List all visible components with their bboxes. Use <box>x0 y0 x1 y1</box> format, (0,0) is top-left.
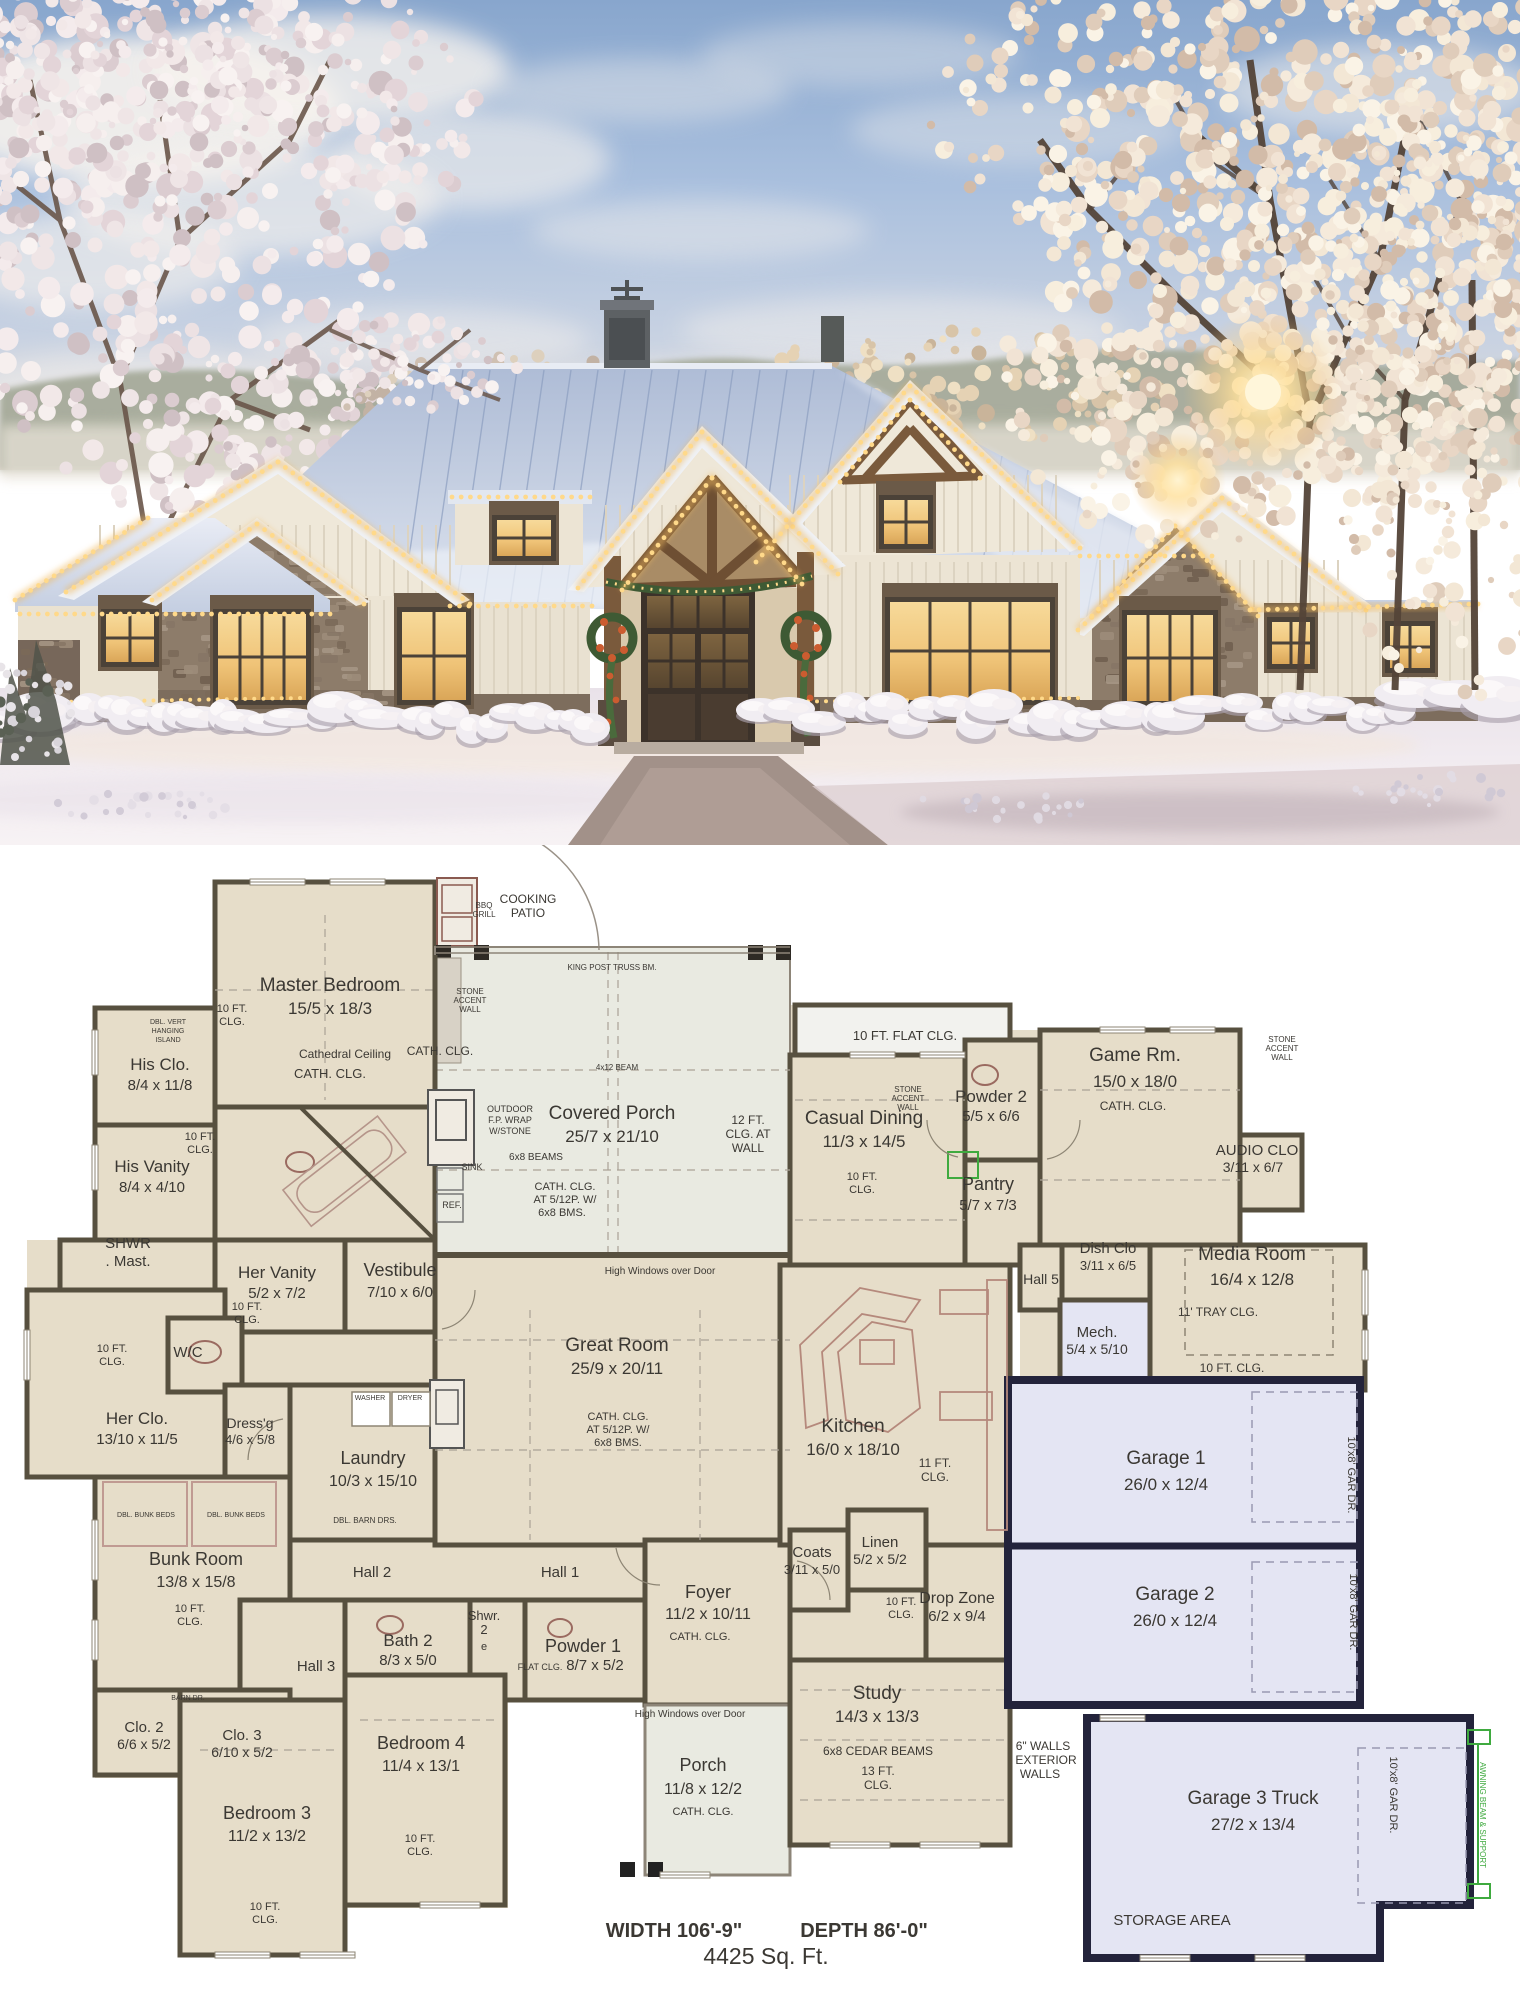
svg-text:10 FT.: 10 FT. <box>232 1301 263 1313</box>
svg-text:ACCENT: ACCENT <box>454 996 487 1005</box>
svg-text:27/2 x 13/4: 27/2 x 13/4 <box>1211 1815 1295 1834</box>
svg-text:BARN DR.: BARN DR. <box>171 1695 205 1702</box>
svg-text:Mech.: Mech. <box>1077 1324 1118 1341</box>
svg-text:CATH. CLG.: CATH. CLG. <box>535 1181 596 1193</box>
svg-text:Bedroom 4: Bedroom 4 <box>377 1733 465 1753</box>
svg-text:11 FT.: 11 FT. <box>919 1456 951 1470</box>
svg-text:5/7 x 7/3: 5/7 x 7/3 <box>959 1197 1017 1214</box>
svg-text:10 FT.: 10 FT. <box>97 1343 128 1355</box>
svg-text:CLG.: CLG. <box>888 1609 914 1621</box>
svg-text:Hall 2: Hall 2 <box>353 1564 391 1581</box>
svg-text:4425 Sq. Ft.: 4425 Sq. Ft. <box>703 1943 828 1969</box>
svg-text:6/10 x 5/2: 6/10 x 5/2 <box>211 1744 273 1760</box>
svg-text:11/3 x 14/5: 11/3 x 14/5 <box>823 1132 906 1151</box>
svg-text:PATIO: PATIO <box>511 906 545 920</box>
svg-text:10'x8' GAR DR.: 10'x8' GAR DR. <box>1345 1437 1357 1514</box>
svg-text:10 FT.: 10 FT. <box>847 1171 878 1183</box>
svg-text:CATH. CLG.: CATH. CLG. <box>588 1411 649 1423</box>
svg-text:11/2 x 10/11: 11/2 x 10/11 <box>665 1606 751 1623</box>
svg-text:6" WALLS: 6" WALLS <box>1016 1739 1071 1753</box>
svg-text:FLAT CLG.: FLAT CLG. <box>518 1662 563 1672</box>
svg-text:AT 5/12P. W/: AT 5/12P. W/ <box>534 1194 598 1206</box>
svg-text:CLG.: CLG. <box>234 1314 260 1326</box>
svg-text:5/2 x 5/2: 5/2 x 5/2 <box>853 1551 907 1567</box>
svg-text:Garage 1: Garage 1 <box>1126 1448 1205 1469</box>
svg-text:12 FT.: 12 FT. <box>731 1113 764 1127</box>
svg-text:13/10 x 11/5: 13/10 x 11/5 <box>96 1431 177 1448</box>
svg-text:11' TRAY CLG.: 11' TRAY CLG. <box>1178 1305 1258 1319</box>
svg-text:Her Vanity: Her Vanity <box>238 1263 317 1282</box>
svg-text:CATH. CLG.: CATH. CLG. <box>673 1806 734 1818</box>
svg-text:SINK: SINK <box>461 1162 482 1172</box>
svg-text:DEPTH 86'-0": DEPTH 86'-0" <box>800 1920 928 1942</box>
svg-text:W/STONE: W/STONE <box>489 1126 531 1136</box>
svg-text:10 FT. FLAT CLG.: 10 FT. FLAT CLG. <box>853 1028 957 1043</box>
svg-text:Great Room: Great Room <box>565 1335 668 1356</box>
svg-text:e: e <box>481 1641 487 1653</box>
svg-text:AUDIO CLO: AUDIO CLO <box>1216 1142 1299 1159</box>
svg-text:CLG. AT: CLG. AT <box>725 1127 771 1141</box>
svg-text:10 FT.: 10 FT. <box>886 1596 917 1608</box>
svg-text:Hall 5: Hall 5 <box>1023 1271 1059 1287</box>
svg-text:WIDTH 106'-9": WIDTH 106'-9" <box>606 1920 742 1942</box>
svg-text:Shwr.: Shwr. <box>468 1608 501 1623</box>
svg-text:His Clo.: His Clo. <box>130 1055 190 1074</box>
svg-text:Her Clo.: Her Clo. <box>106 1409 168 1428</box>
svg-text:6x8 BEAMS: 6x8 BEAMS <box>509 1152 563 1163</box>
svg-text:DBL. BARN DRS.: DBL. BARN DRS. <box>333 1516 397 1525</box>
svg-text:CLG.: CLG. <box>252 1914 278 1926</box>
svg-text:CLG.: CLG. <box>99 1356 125 1368</box>
svg-text:Master Bedroom: Master Bedroom <box>260 975 400 996</box>
svg-text:5/2 x 7/2: 5/2 x 7/2 <box>248 1285 306 1302</box>
svg-text:10 FT.: 10 FT. <box>217 1003 248 1015</box>
svg-text:Foyer: Foyer <box>685 1582 731 1602</box>
svg-text:His Vanity: His Vanity <box>114 1157 190 1176</box>
svg-text:13 FT.: 13 FT. <box>861 1764 894 1778</box>
svg-text:Vestibule: Vestibule <box>363 1260 436 1280</box>
svg-text:6x8 CEDAR BEAMS: 6x8 CEDAR BEAMS <box>823 1744 933 1758</box>
svg-text:High Windows over Door: High Windows over Door <box>605 1266 716 1277</box>
svg-text:STORAGE AREA: STORAGE AREA <box>1113 1912 1230 1929</box>
svg-text:DBL. VERT: DBL. VERT <box>150 1019 187 1026</box>
svg-text:10 FT. CLG.: 10 FT. CLG. <box>1200 1361 1265 1375</box>
svg-text:26/0 x 12/4: 26/0 x 12/4 <box>1133 1611 1217 1630</box>
svg-text:3/11 x 5/0: 3/11 x 5/0 <box>784 1562 840 1577</box>
svg-text:WALL: WALL <box>1271 1053 1293 1062</box>
svg-text:W/C: W/C <box>173 1344 202 1361</box>
svg-text:10 FT.: 10 FT. <box>250 1901 281 1913</box>
svg-text:CLG.: CLG. <box>864 1778 892 1792</box>
svg-text:Porch: Porch <box>679 1755 726 1775</box>
svg-text:Laundry: Laundry <box>340 1448 405 1468</box>
svg-text:2: 2 <box>480 1622 487 1637</box>
svg-text:8/4 x 4/10: 8/4 x 4/10 <box>119 1179 185 1196</box>
svg-text:10 FT.: 10 FT. <box>175 1603 206 1615</box>
svg-text:WALL: WALL <box>897 1103 919 1112</box>
svg-text:EXTERIOR: EXTERIOR <box>1015 1753 1077 1767</box>
svg-text:CLG.: CLG. <box>187 1144 213 1156</box>
svg-text:ACCENT: ACCENT <box>1266 1044 1299 1053</box>
svg-text:CATH. CLG.: CATH. CLG. <box>407 1044 473 1058</box>
svg-text:5/5 x 6/6: 5/5 x 6/6 <box>962 1108 1020 1125</box>
svg-text:High Windows over Door: High Windows over Door <box>635 1709 746 1720</box>
svg-text:10/3 x 15/10: 10/3 x 15/10 <box>329 1473 417 1490</box>
svg-text:3/11 x 6/7: 3/11 x 6/7 <box>1223 1159 1284 1175</box>
svg-text:Cathedral Ceiling: Cathedral Ceiling <box>299 1047 391 1061</box>
svg-text:Drop Zone: Drop Zone <box>919 1590 995 1607</box>
svg-text:ACCENT: ACCENT <box>892 1094 925 1103</box>
svg-text:16/0 x 18/10: 16/0 x 18/10 <box>806 1440 900 1459</box>
svg-text:4/6 x 5/8: 4/6 x 5/8 <box>225 1432 275 1447</box>
svg-text:Dress'g: Dress'g <box>226 1415 273 1431</box>
svg-text:CATH. CLG.: CATH. CLG. <box>1100 1099 1166 1113</box>
svg-text:WALL: WALL <box>459 1005 481 1014</box>
svg-text:Game Rm.: Game Rm. <box>1089 1045 1181 1066</box>
svg-text:Hall 1: Hall 1 <box>541 1564 579 1581</box>
svg-text:CLG.: CLG. <box>407 1846 433 1858</box>
svg-text:8/7 x 5/2: 8/7 x 5/2 <box>566 1657 624 1674</box>
svg-text:OUTDOOR: OUTDOOR <box>487 1104 533 1114</box>
svg-text:Bath 2: Bath 2 <box>383 1631 432 1650</box>
svg-text:CLG.: CLG. <box>921 1470 949 1484</box>
svg-text:CLG.: CLG. <box>177 1616 203 1628</box>
svg-text:4x12 BEAM: 4x12 BEAM <box>596 1063 639 1072</box>
svg-text:15/5 x 18/3: 15/5 x 18/3 <box>288 999 372 1018</box>
svg-text:10 FT.: 10 FT. <box>185 1131 216 1143</box>
svg-text:F.P. WRAP: F.P. WRAP <box>488 1115 532 1125</box>
svg-text:Dish Clo: Dish Clo <box>1080 1240 1137 1257</box>
svg-text:Media Room: Media Room <box>1198 1244 1306 1265</box>
svg-text:Study: Study <box>853 1683 902 1704</box>
svg-text:6x8 BMS.: 6x8 BMS. <box>594 1437 642 1449</box>
svg-text:6/6 x 5/2: 6/6 x 5/2 <box>117 1736 171 1752</box>
svg-text:Powder 2: Powder 2 <box>955 1087 1027 1106</box>
svg-text:11/2 x 13/2: 11/2 x 13/2 <box>228 1828 306 1845</box>
svg-text:WALLS: WALLS <box>1020 1767 1060 1781</box>
svg-text:STONE: STONE <box>894 1085 921 1094</box>
svg-text:Linen: Linen <box>862 1534 899 1551</box>
svg-text:CLG.: CLG. <box>219 1016 245 1028</box>
svg-text:Powder 1: Powder 1 <box>545 1636 621 1656</box>
svg-text:Bunk Room: Bunk Room <box>149 1549 243 1569</box>
svg-text:WASHER: WASHER <box>355 1395 385 1402</box>
svg-text:10 FT.: 10 FT. <box>405 1833 436 1845</box>
svg-text:COOKING: COOKING <box>500 892 557 906</box>
svg-text:GRILL: GRILL <box>472 910 496 919</box>
svg-text:6/2 x 9/4: 6/2 x 9/4 <box>928 1608 986 1625</box>
svg-text:STONE: STONE <box>456 987 483 996</box>
svg-text:REF.: REF. <box>442 1200 462 1210</box>
svg-text:WALL: WALL <box>732 1141 765 1155</box>
svg-text:10'x8' GAR DR.: 10'x8' GAR DR. <box>1347 1574 1359 1651</box>
svg-text:DBL. BUNK BEDS: DBL. BUNK BEDS <box>207 1512 265 1519</box>
svg-text:Kitchen: Kitchen <box>821 1416 884 1437</box>
svg-text:Coats: Coats <box>792 1544 831 1561</box>
svg-text:Clo. 3: Clo. 3 <box>222 1727 261 1744</box>
svg-text:7/10 x 6/0: 7/10 x 6/0 <box>367 1284 433 1301</box>
svg-text:8/3 x 5/0: 8/3 x 5/0 <box>379 1652 437 1669</box>
svg-text:HANGING: HANGING <box>152 1028 185 1035</box>
svg-text:25/9 x 20/11: 25/9 x 20/11 <box>571 1359 663 1378</box>
svg-text:AWNING BEAM & SUPPORT: AWNING BEAM & SUPPORT <box>1478 1762 1487 1868</box>
svg-text:Covered Porch: Covered Porch <box>549 1103 676 1124</box>
svg-text:CLG.: CLG. <box>849 1184 875 1196</box>
svg-text:5/4 x 5/10: 5/4 x 5/10 <box>1066 1341 1128 1357</box>
svg-text:CATH. CLG.: CATH. CLG. <box>294 1066 366 1081</box>
svg-text:6x8 BMS.: 6x8 BMS. <box>538 1207 586 1219</box>
svg-text:ISLAND: ISLAND <box>155 1037 180 1044</box>
svg-text:Clo. 2: Clo. 2 <box>124 1719 163 1736</box>
svg-text:. Mast.: . Mast. <box>105 1253 150 1270</box>
svg-text:10'x8' GAR DR.: 10'x8' GAR DR. <box>1387 1757 1399 1834</box>
svg-text:KING POST TRUSS BM.: KING POST TRUSS BM. <box>567 963 656 972</box>
svg-text:13/8 x 15/8: 13/8 x 15/8 <box>156 1574 235 1591</box>
svg-text:26/0 x 12/4: 26/0 x 12/4 <box>1124 1475 1208 1494</box>
svg-text:BBQ: BBQ <box>476 901 493 910</box>
svg-text:DRYER: DRYER <box>398 1395 422 1402</box>
svg-text:8/4 x 11/8: 8/4 x 11/8 <box>128 1077 193 1094</box>
svg-text:3/11 x 6/5: 3/11 x 6/5 <box>1080 1258 1136 1273</box>
svg-text:11/4 x 13/1: 11/4 x 13/1 <box>382 1758 460 1775</box>
svg-text:Garage 3 Truck: Garage 3 Truck <box>1188 1788 1319 1809</box>
svg-text:14/3 x 13/3: 14/3 x 13/3 <box>835 1707 919 1726</box>
svg-text:Pantry: Pantry <box>962 1174 1014 1194</box>
svg-text:25/7 x 21/10: 25/7 x 21/10 <box>565 1127 659 1146</box>
svg-text:Bedroom 3: Bedroom 3 <box>223 1803 311 1823</box>
svg-text:16/4 x 12/8: 16/4 x 12/8 <box>1210 1270 1294 1289</box>
svg-text:AT 5/12P. W/: AT 5/12P. W/ <box>587 1424 651 1436</box>
svg-text:Garage 2: Garage 2 <box>1135 1584 1214 1605</box>
svg-text:CATH. CLG.: CATH. CLG. <box>670 1631 731 1643</box>
svg-text:11/8 x 12/2: 11/8 x 12/2 <box>664 1781 742 1798</box>
svg-text:15/0 x 18/0: 15/0 x 18/0 <box>1093 1072 1177 1091</box>
svg-text:Hall 3: Hall 3 <box>297 1658 335 1675</box>
svg-text:STONE: STONE <box>1268 1035 1295 1044</box>
svg-text:SHWR: SHWR <box>105 1235 151 1252</box>
svg-text:DBL. BUNK BEDS: DBL. BUNK BEDS <box>117 1512 175 1519</box>
